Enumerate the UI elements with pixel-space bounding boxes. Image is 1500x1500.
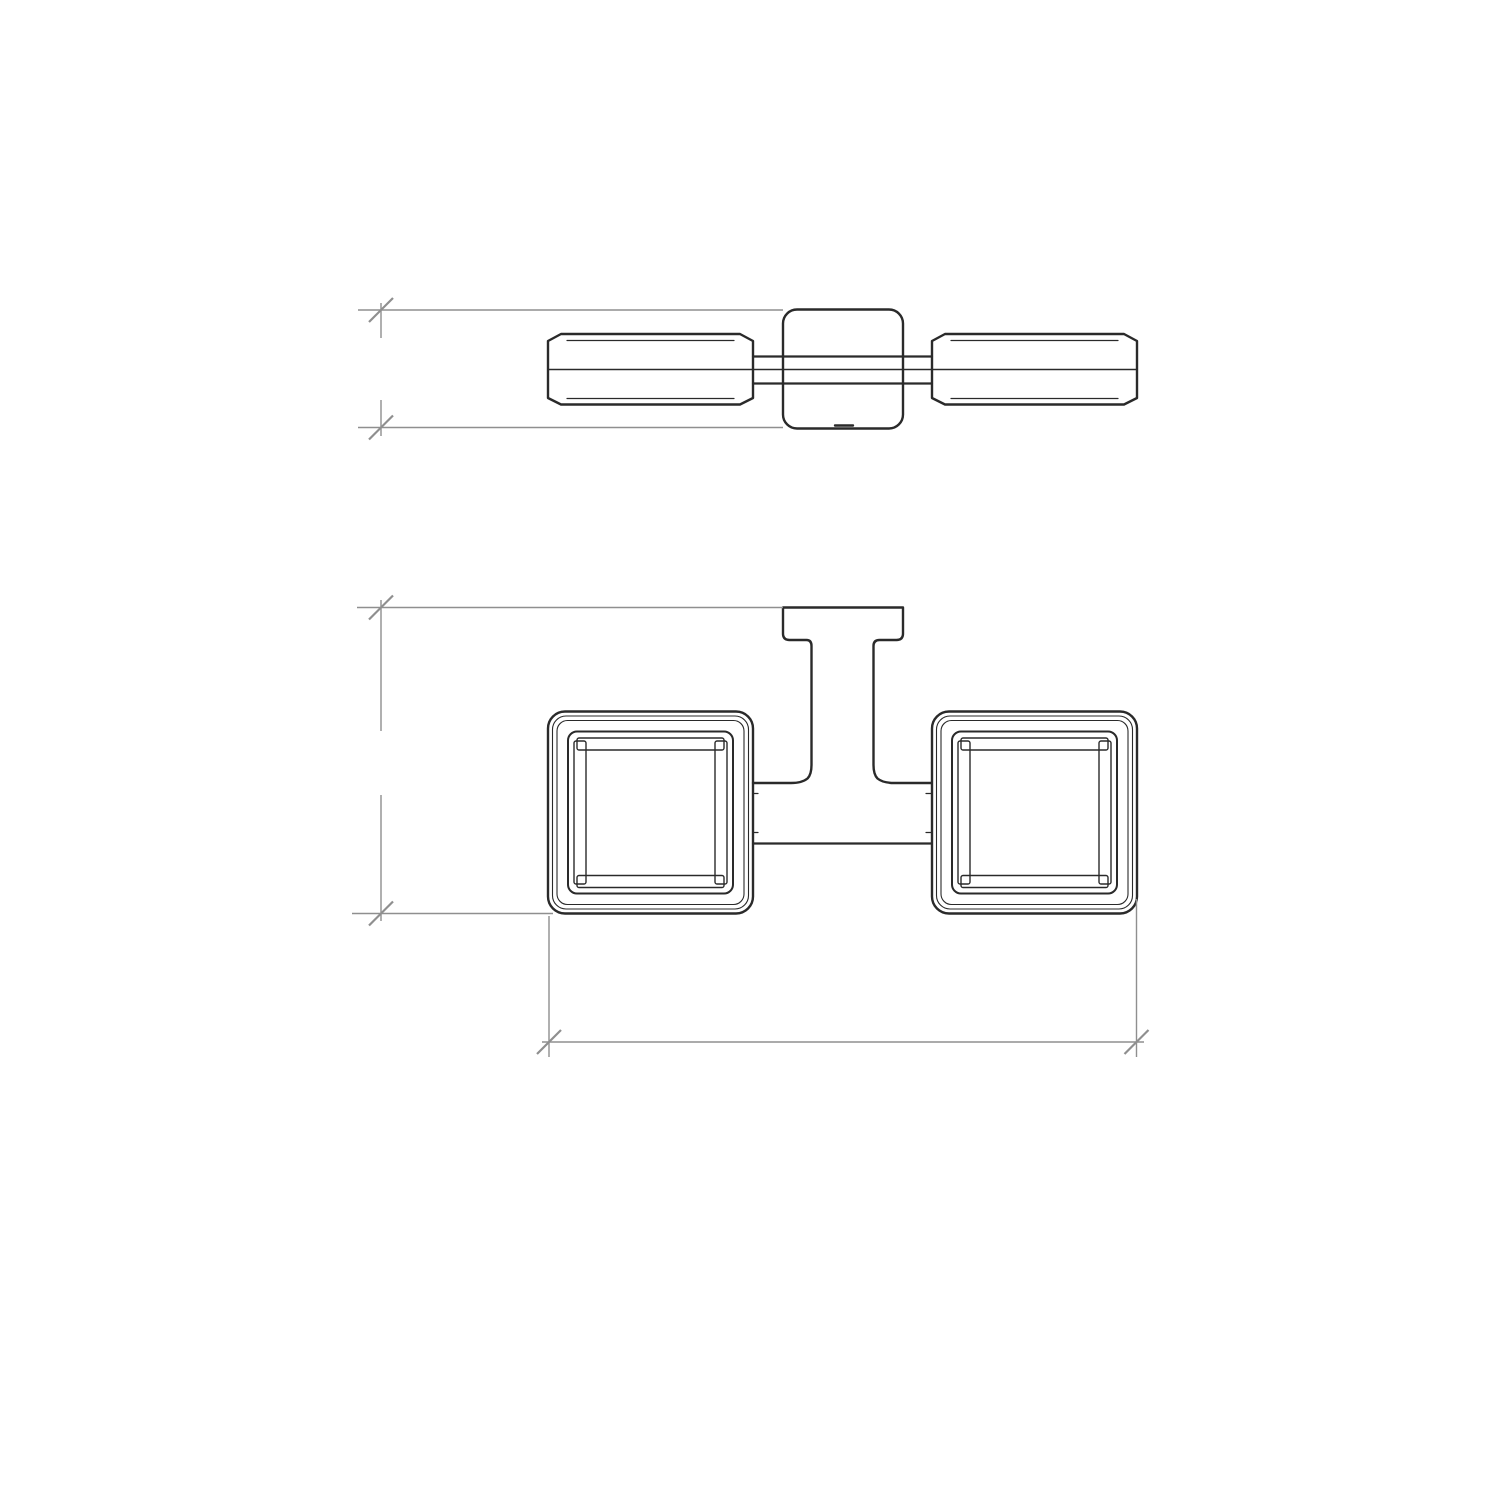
right-holder-inner-frame: [952, 732, 1117, 894]
front-view-left-holder: [548, 712, 753, 914]
drawing-canvas: 40: [0, 0, 1500, 1500]
right-holder-slat-bottom: [961, 876, 1108, 888]
dim40-label: 40: [349, 336, 414, 403]
front-view-right-holder: [932, 712, 1137, 914]
front-view-wall-post: [753, 608, 931, 784]
left-holder-rim-line-2: [553, 716, 749, 909]
right-holder-outer-rim: [932, 712, 1137, 914]
right-holder-rim-line-2: [937, 716, 1133, 909]
left-holder-slat-left: [574, 741, 586, 884]
dimension-197: 197: [537, 899, 1149, 1057]
left-holder-inner-frame: [568, 732, 733, 894]
front-view: [548, 608, 1137, 914]
left-holder-slat-right: [715, 741, 727, 884]
dim197-label: 197: [794, 972, 891, 1039]
right-holder-slat-top: [961, 738, 1108, 750]
top-view: [548, 310, 1137, 429]
left-holder-outer-rim: [548, 712, 753, 914]
right-holder-slat-left: [958, 741, 970, 884]
left-holder-slat-bottom: [577, 876, 724, 888]
left-holder-rim-line-3: [557, 721, 744, 905]
technical-drawing-svg: 40: [0, 0, 1500, 1500]
right-holder-slat-right: [1099, 741, 1111, 884]
left-holder-slat-top: [577, 738, 724, 750]
dim105-label: 105: [336, 730, 433, 797]
right-holder-rim-line-3: [941, 721, 1128, 905]
